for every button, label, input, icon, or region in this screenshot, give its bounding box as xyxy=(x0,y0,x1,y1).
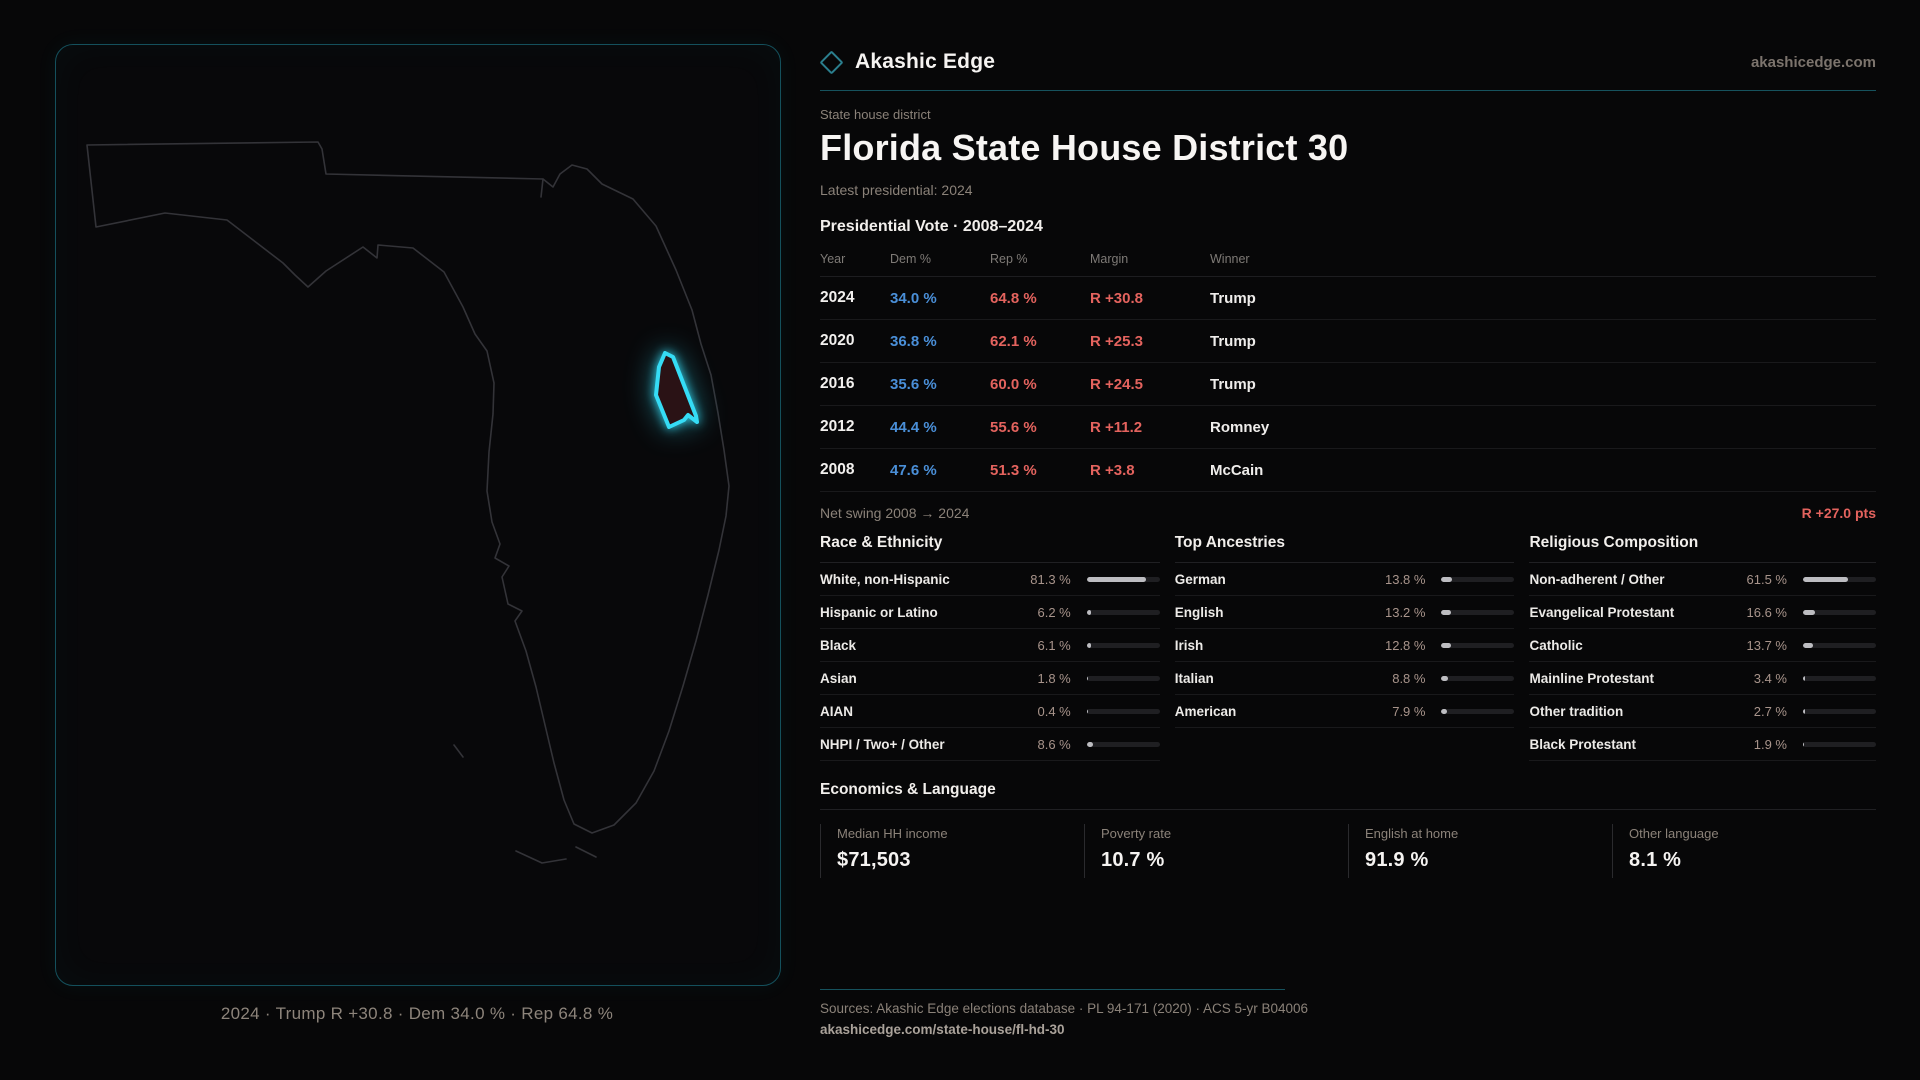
vote-table-body: 202434.0 %64.8 %R +30.8Trump202036.8 %62… xyxy=(820,277,1876,492)
stat-bar-fill xyxy=(1803,742,1804,747)
vote-row: 200847.6 %51.3 %R +3.8McCain xyxy=(820,449,1876,492)
vote-rep: 64.8 % xyxy=(990,290,1090,307)
stat-label: Median HH income xyxy=(837,826,1084,841)
stat-label: English at home xyxy=(1365,826,1612,841)
stat-bar xyxy=(1803,676,1876,681)
demo-label: White, non-Hispanic xyxy=(820,572,1019,587)
page-title: Florida State House District 30 xyxy=(820,127,1876,169)
demo-value: 0.4 % xyxy=(1019,704,1071,719)
demo-label: Irish xyxy=(1175,638,1374,653)
demo-row: English13.2 % xyxy=(1175,596,1515,629)
stat-bar xyxy=(1087,610,1160,615)
demo-label: Italian xyxy=(1175,671,1374,686)
vote-col-header: Dem % xyxy=(890,252,990,266)
demo-value: 7.9 % xyxy=(1373,704,1425,719)
vote-row: 202036.8 %62.1 %R +25.3Trump xyxy=(820,320,1876,363)
presidential-vote-table: YearDem %Rep %MarginWinner 202434.0 %64.… xyxy=(820,246,1876,492)
demo-value: 12.8 % xyxy=(1373,638,1425,653)
demo-row: White, non-Hispanic81.3 % xyxy=(820,563,1160,596)
stat-bar xyxy=(1441,610,1514,615)
demo-row: German13.8 % xyxy=(1175,563,1515,596)
stat-label: Poverty rate xyxy=(1101,826,1348,841)
demo-row: Black Protestant1.9 % xyxy=(1529,728,1876,761)
stat-bar-fill xyxy=(1803,709,1805,714)
net-swing-row: Net swing 2008 → 2024 R +27.0 pts xyxy=(820,505,1876,521)
footer-divider xyxy=(820,989,1285,990)
stat-bar xyxy=(1803,643,1876,648)
stat-bar xyxy=(1803,577,1876,582)
stat-label: Other language xyxy=(1629,826,1876,841)
header-divider xyxy=(820,90,1876,91)
demo-row: Asian1.8 % xyxy=(820,662,1160,695)
demo-value: 16.6 % xyxy=(1735,605,1787,620)
vote-row: 201244.4 %55.6 %R +11.2Romney xyxy=(820,406,1876,449)
vote-year: 2024 xyxy=(820,289,890,307)
demo-value: 13.7 % xyxy=(1735,638,1787,653)
demo-value: 1.8 % xyxy=(1019,671,1071,686)
demo-label: Non-adherent / Other xyxy=(1529,572,1735,587)
district-30-shape[interactable] xyxy=(656,353,697,427)
stat-value: 10.7 % xyxy=(1101,849,1348,872)
vote-table-header: YearDem %Rep %MarginWinner xyxy=(820,246,1876,277)
stat-bar-fill xyxy=(1087,610,1092,615)
demo-section: Race & EthnicityWhite, non-Hispanic81.3 … xyxy=(820,534,1160,761)
district-map-panel xyxy=(55,44,781,986)
demo-value: 6.1 % xyxy=(1019,638,1071,653)
stat-bar-fill xyxy=(1441,709,1447,714)
stat-bar-fill xyxy=(1803,577,1848,582)
vote-col-header: Margin xyxy=(1090,252,1210,266)
economics-stats-row: Median HH income$71,503Poverty rate10.7 … xyxy=(820,824,1876,878)
stat-bar-fill xyxy=(1087,676,1088,681)
demo-label: Hispanic or Latino xyxy=(820,605,1019,620)
sources-line: Sources: Akashic Edge elections database… xyxy=(820,1001,1876,1016)
stat-bar xyxy=(1441,709,1514,714)
demo-section: Top AncestriesGerman13.8 %English13.2 %I… xyxy=(1175,534,1515,761)
vote-year: 2012 xyxy=(820,418,890,436)
demo-label: American xyxy=(1175,704,1374,719)
vote-col-header: Year xyxy=(820,252,890,266)
vote-dem: 34.0 % xyxy=(890,290,990,307)
stat-bar-fill xyxy=(1087,643,1091,648)
stat-card: Median HH income$71,503 xyxy=(820,824,1084,878)
stat-bar-fill xyxy=(1803,610,1815,615)
demo-row: Evangelical Protestant16.6 % xyxy=(1529,596,1876,629)
district-report: Akashic Edge akashicedge.com State house… xyxy=(820,46,1876,878)
demo-value: 13.8 % xyxy=(1373,572,1425,587)
demo-label: Other tradition xyxy=(1529,704,1735,719)
economics-title: Economics & Language xyxy=(820,781,1876,810)
stat-value: 8.1 % xyxy=(1629,849,1876,872)
demo-label: Catholic xyxy=(1529,638,1735,653)
vote-dem: 47.6 % xyxy=(890,462,990,479)
vote-rep: 55.6 % xyxy=(990,419,1090,436)
demo-row: Non-adherent / Other61.5 % xyxy=(1529,563,1876,596)
vote-year: 2020 xyxy=(820,332,890,350)
vote-dem: 36.8 % xyxy=(890,333,990,350)
demo-label: Mainline Protestant xyxy=(1529,671,1735,686)
vote-dem: 35.6 % xyxy=(890,376,990,393)
demo-label: Evangelical Protestant xyxy=(1529,605,1735,620)
stat-card: Poverty rate10.7 % xyxy=(1084,824,1348,878)
florida-map xyxy=(56,45,780,985)
demo-row: Black6.1 % xyxy=(820,629,1160,662)
vote-row: 201635.6 %60.0 %R +24.5Trump xyxy=(820,363,1876,406)
stat-bar xyxy=(1087,709,1160,714)
demo-section-title: Religious Composition xyxy=(1529,534,1876,563)
demo-value: 8.8 % xyxy=(1373,671,1425,686)
stat-bar-fill xyxy=(1087,742,1093,747)
demo-row: Italian8.8 % xyxy=(1175,662,1515,695)
demo-label: English xyxy=(1175,605,1374,620)
demo-row: American7.9 % xyxy=(1175,695,1515,728)
demo-value: 13.2 % xyxy=(1373,605,1425,620)
demo-value: 2.7 % xyxy=(1735,704,1787,719)
stat-card: Other language8.1 % xyxy=(1612,824,1876,878)
vote-margin: R +11.2 xyxy=(1090,419,1210,436)
demo-section: Religious CompositionNon-adherent / Othe… xyxy=(1529,534,1876,761)
demo-section-title: Race & Ethnicity xyxy=(820,534,1160,563)
vote-margin: R +30.8 xyxy=(1090,290,1210,307)
stat-bar-fill xyxy=(1441,643,1450,648)
vote-winner: Trump xyxy=(1210,333,1876,350)
vote-year: 2008 xyxy=(820,461,890,479)
stat-bar-fill xyxy=(1087,577,1146,582)
stat-bar xyxy=(1803,709,1876,714)
stat-bar xyxy=(1441,643,1514,648)
vote-col-header: Rep % xyxy=(990,252,1090,266)
stat-value: $71,503 xyxy=(837,849,1084,872)
demo-label: Black xyxy=(820,638,1019,653)
stat-bar-fill xyxy=(1803,676,1805,681)
demo-row: Hispanic or Latino6.2 % xyxy=(820,596,1160,629)
brand-domain-link[interactable]: akashicedge.com xyxy=(1751,54,1876,71)
stat-bar xyxy=(1087,742,1160,747)
demo-value: 6.2 % xyxy=(1019,605,1071,620)
demo-row: AIAN0.4 % xyxy=(820,695,1160,728)
vote-year: 2016 xyxy=(820,375,890,393)
florida-keys xyxy=(454,745,596,863)
map-caption: 2024 · Trump R +30.8 · Dem 34.0 % · Rep … xyxy=(55,1004,779,1024)
vote-winner: Trump xyxy=(1210,290,1876,307)
stat-bar xyxy=(1803,610,1876,615)
stat-bar xyxy=(1087,577,1160,582)
st-marys-river-tick xyxy=(541,179,543,197)
stat-card: English at home91.9 % xyxy=(1348,824,1612,878)
demo-row: Catholic13.7 % xyxy=(1529,629,1876,662)
demo-value: 3.4 % xyxy=(1735,671,1787,686)
florida-outline xyxy=(87,142,729,833)
demographics-grid: Race & EthnicityWhite, non-Hispanic81.3 … xyxy=(820,534,1876,761)
demo-row: NHPI / Two+ / Other8.6 % xyxy=(820,728,1160,761)
stat-bar xyxy=(1441,676,1514,681)
demo-label: Black Protestant xyxy=(1529,737,1735,752)
vote-margin: R +3.8 xyxy=(1090,462,1210,479)
stat-bar-fill xyxy=(1441,577,1451,582)
vote-dem: 44.4 % xyxy=(890,419,990,436)
demo-value: 61.5 % xyxy=(1735,572,1787,587)
diamond-logo-icon xyxy=(819,50,843,74)
demo-row: Mainline Protestant3.4 % xyxy=(1529,662,1876,695)
demo-section-title: Top Ancestries xyxy=(1175,534,1515,563)
demo-label: Asian xyxy=(820,671,1019,686)
stat-bar xyxy=(1087,643,1160,648)
demo-label: AIAN xyxy=(820,704,1019,719)
demo-value: 8.6 % xyxy=(1019,737,1071,752)
demo-row: Irish12.8 % xyxy=(1175,629,1515,662)
footer: Sources: Akashic Edge elections database… xyxy=(820,989,1876,1039)
vote-winner: Trump xyxy=(1210,376,1876,393)
vote-rep: 62.1 % xyxy=(990,333,1090,350)
kicker-label: State house district xyxy=(820,107,1876,122)
stat-bar xyxy=(1087,676,1160,681)
vote-rep: 60.0 % xyxy=(990,376,1090,393)
stat-bar-fill xyxy=(1803,643,1813,648)
stat-value: 91.9 % xyxy=(1365,849,1612,872)
demo-label: German xyxy=(1175,572,1374,587)
stat-bar-fill xyxy=(1441,676,1447,681)
brand-name: Akashic Edge xyxy=(855,50,995,74)
brand-header: Akashic Edge akashicedge.com xyxy=(820,46,1876,78)
vote-table-title: Presidential Vote · 2008–2024 xyxy=(820,218,1876,236)
vote-winner: McCain xyxy=(1210,462,1876,479)
net-swing-value: R +27.0 pts xyxy=(1802,505,1876,521)
permalink[interactable]: akashicedge.com/state-house/fl-hd-30 xyxy=(820,1022,1065,1037)
stat-bar xyxy=(1441,577,1514,582)
vote-winner: Romney xyxy=(1210,419,1876,436)
latest-presidential-label: Latest presidential: 2024 xyxy=(820,182,1876,198)
stat-bar xyxy=(1803,742,1876,747)
stat-bar-fill xyxy=(1441,610,1451,615)
vote-margin: R +25.3 xyxy=(1090,333,1210,350)
net-swing-label: Net swing 2008 → 2024 xyxy=(820,505,969,521)
demo-value: 81.3 % xyxy=(1019,572,1071,587)
demo-row: Other tradition2.7 % xyxy=(1529,695,1876,728)
demo-value: 1.9 % xyxy=(1735,737,1787,752)
vote-row: 202434.0 %64.8 %R +30.8Trump xyxy=(820,277,1876,320)
vote-rep: 51.3 % xyxy=(990,462,1090,479)
demo-label: NHPI / Two+ / Other xyxy=(820,737,1019,752)
vote-margin: R +24.5 xyxy=(1090,376,1210,393)
vote-col-header: Winner xyxy=(1210,252,1876,266)
